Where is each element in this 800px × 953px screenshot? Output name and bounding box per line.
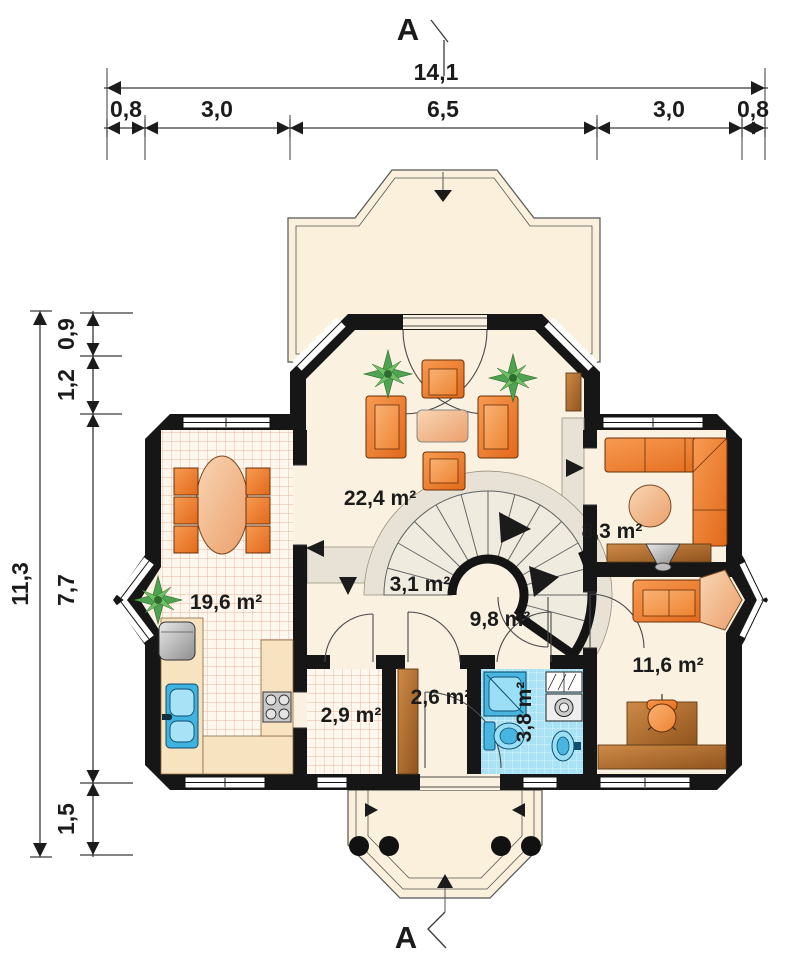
dim-seg-h-4: 0,8 [737,96,769,122]
dim-seg-h-0: 0,8 [110,96,142,122]
dim-seg-v-0: 0,9 [53,318,79,350]
wardrobe-cabinet [398,669,418,774]
dim-seg-h-1: 3,0 [201,96,233,122]
section-mark-bottom: A [395,920,417,953]
entrance-porch [348,790,542,912]
porch-column [349,836,369,856]
office-chair [647,694,677,732]
kitchen-sink [162,684,198,748]
window-sitting-top [603,417,703,428]
washing-machine [546,694,582,721]
dining-table [196,456,248,554]
armchair-right [478,396,518,458]
dim-seg-h-3: 3,0 [653,96,685,122]
label-sitting-room: 8,3 m² [582,520,643,543]
dim-seg-v-1: 1,2 [53,369,79,401]
armchair-top [422,360,464,398]
label-wardrobe: 2,6 m² [411,686,472,709]
dimension-top: A 14,1 0,8 3,0 6,5 3,0 0,8 [104,12,769,160]
porch-column [379,836,399,856]
label-hall: 9,8 m² [470,608,531,631]
porch-column [491,836,511,856]
window-pantry-bottom [317,777,347,788]
section-mark-top: A [397,12,419,47]
dimension-left: 11,3 0,9 1,2 7,7 1,5 [7,311,133,857]
boiler-shelf [546,672,582,692]
dim-seg-h-2: 6,5 [427,96,459,122]
loveseat [633,580,705,622]
dim-seg-v-2: 7,7 [53,574,79,606]
armchair-bottom [423,452,465,490]
label-office: 11,6 m² [632,654,703,677]
kitchen-counter-bottom [203,736,293,774]
coffee-table [417,410,468,442]
window-office-bottom [600,777,690,788]
window-bathroom-bottom [523,777,557,788]
section-mark-bottom-group: A [395,912,446,953]
label-pantry: 2,9 m² [321,704,382,727]
dim-seg-v-3: 1,5 [53,803,79,835]
section-zigzag-bottom [428,912,446,948]
porch-column [521,836,541,856]
floor-plan-drawing: A 14,1 0,8 3,0 6,5 3,0 0,8 11,3 0,9 [0,0,800,953]
floor-plan-page: A 14,1 0,8 3,0 6,5 3,0 0,8 11,3 0,9 [0,0,800,953]
window-kitchen-bottom [185,777,265,788]
dim-overall-width: 14,1 [414,59,459,85]
fireplace [566,373,581,411]
armchair-left [366,396,406,458]
fridge [159,622,195,660]
dim-overall-height: 11,3 [7,562,33,606]
stove [263,692,291,722]
window-kitchen-top [183,417,270,428]
label-kitchen-dining: 19,6 m² [190,591,262,614]
label-staircase: 3,1 m² [390,573,451,596]
label-bathroom: 3,8 m² [513,682,536,743]
label-living-room: 22,4 m² [344,487,416,510]
